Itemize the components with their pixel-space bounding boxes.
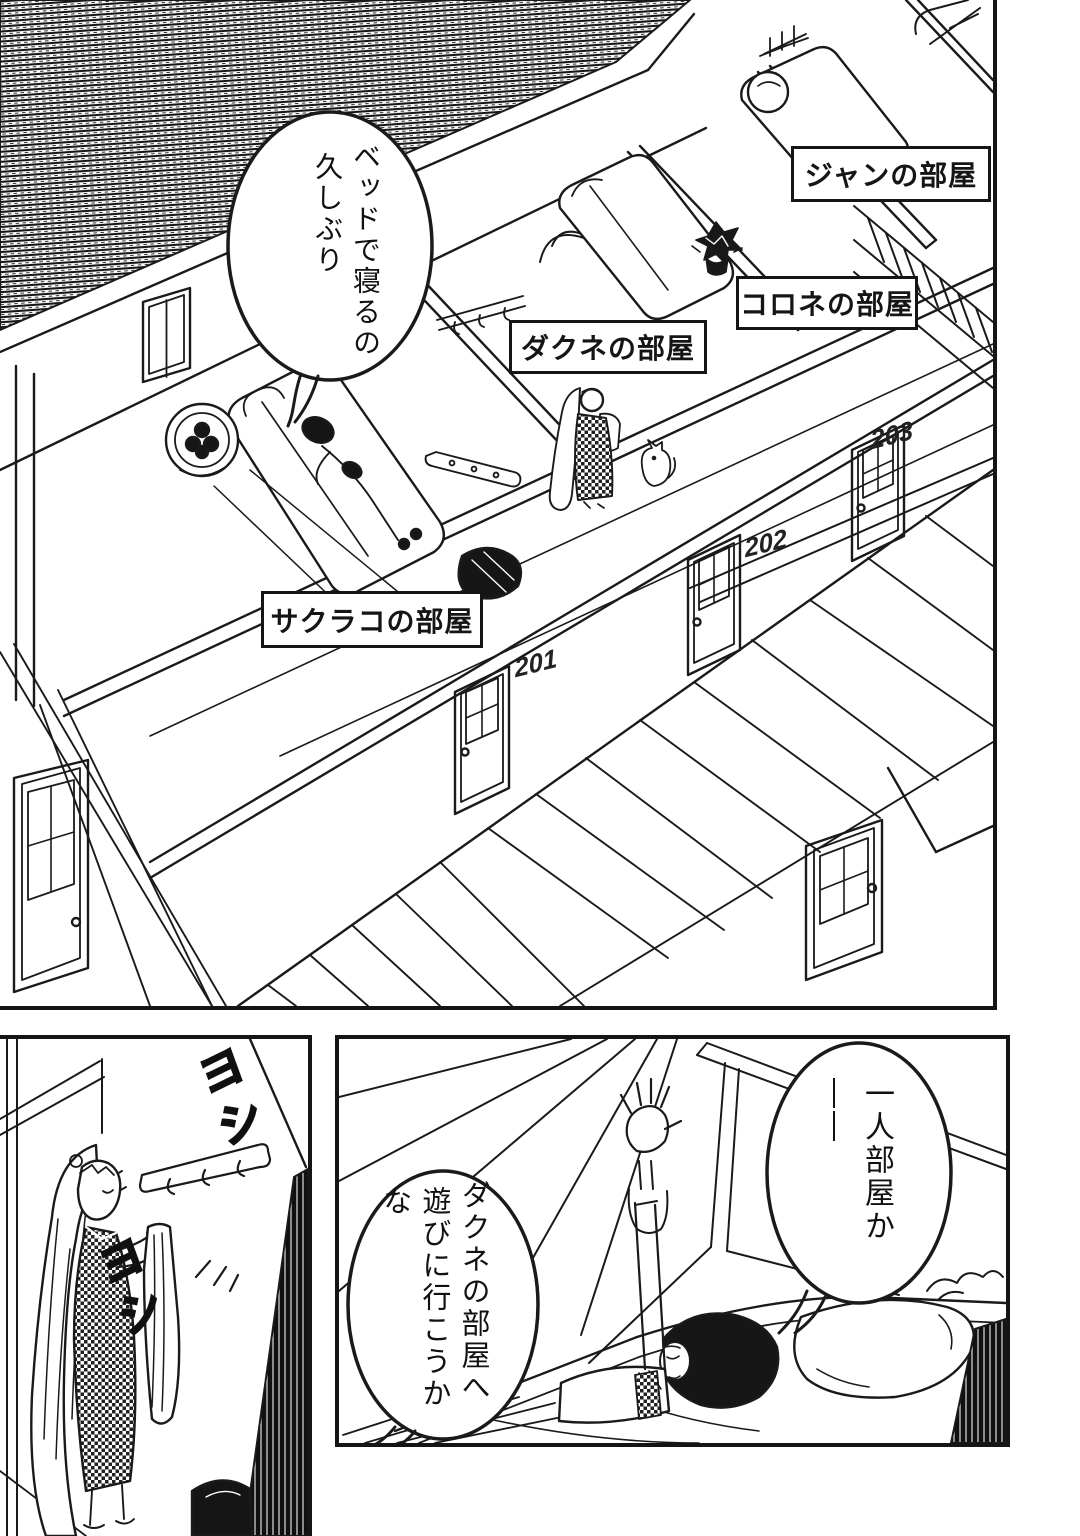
bubble-line: 久しぶり (308, 142, 346, 372)
pillow (794, 1300, 974, 1398)
standing-character-dakune (550, 388, 620, 510)
room-label-dakune: ダクネの部屋 (509, 320, 707, 374)
room-label-text: ジャンの部屋 (805, 154, 978, 194)
dark-head-foreground (192, 1480, 252, 1536)
room-label-text: コロネの部屋 (740, 283, 914, 323)
round-chair (166, 404, 238, 476)
bubble-line: 一人部屋か―― (815, 1078, 896, 1273)
bubble-line: 遊びに行こうかな (375, 1180, 453, 1420)
manga-page: ベッドで寝るの 久しぶり ジャンの部屋 コロネの部屋 ダクネの部屋 サクラコの部… (0, 0, 1080, 1536)
ground-door-left (14, 760, 88, 992)
room-label-text: ダクネの部屋 (521, 327, 695, 367)
speech-bubble-right-text: 一人部屋か―― (822, 1078, 896, 1273)
speech-bubble-sakurako-text: ベッドで寝るの 久しぶり (272, 142, 384, 372)
bubble-line: ベッドで寝るの (346, 142, 384, 372)
room-label-korone: コロネの部屋 (736, 276, 918, 330)
bedding-bumps (927, 1271, 1003, 1299)
door-201 (455, 666, 509, 814)
room-label-sakurako: サクラコの部屋 (261, 591, 483, 648)
speech-bubble-left-text: ダクネの部屋へ 遊びに行こうかな (380, 1180, 492, 1420)
door-202 (688, 535, 740, 675)
cat (642, 440, 675, 486)
bubble-line: ダクネの部屋へ (453, 1180, 492, 1420)
lying-character (559, 1079, 778, 1423)
room-label-jan: ジャンの部屋 (791, 146, 991, 202)
floor-board-object (426, 452, 521, 487)
bed-sakurako (214, 361, 444, 610)
panel-dorm-cutaway: ベッドで寝るの 久しぶり ジャンの部屋 コロネの部屋 ダクネの部屋 サクラコの部… (0, 0, 997, 1010)
room-label-text: サクラコの部屋 (270, 600, 473, 640)
motion-marks (196, 1261, 238, 1291)
